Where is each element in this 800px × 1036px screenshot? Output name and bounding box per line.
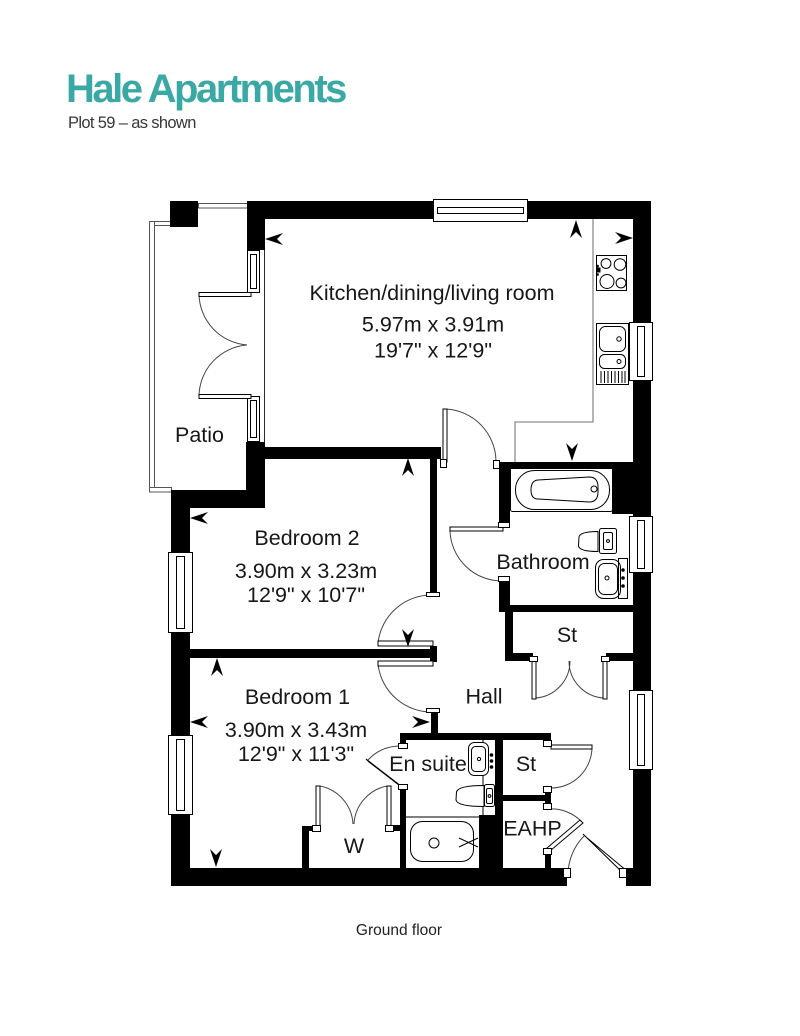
svg-text:St: St [516, 752, 536, 776]
svg-text:Bedroom 1: Bedroom 1 [245, 685, 350, 709]
svg-text:3.90m x 3.43m: 3.90m x 3.43m [225, 718, 367, 742]
svg-text:Ground floor: Ground floor [356, 922, 442, 939]
svg-text:W: W [344, 834, 365, 858]
svg-text:3.90m x 3.23m: 3.90m x 3.23m [235, 559, 377, 583]
svg-text:Hale Apartments: Hale Apartments [66, 67, 346, 111]
svg-text:En suite: En suite [389, 752, 467, 776]
svg-text:St: St [557, 623, 577, 647]
svg-text:Bathroom: Bathroom [496, 550, 589, 574]
svg-text:Kitchen/dining/living room: Kitchen/dining/living room [310, 281, 555, 305]
svg-text:5.97m x 3.91m: 5.97m x 3.91m [362, 313, 504, 337]
svg-text:Hall: Hall [465, 685, 502, 709]
svg-text:Plot 59 – as shown: Plot 59 – as shown [68, 114, 196, 132]
svg-text:12'9" x 11'3": 12'9" x 11'3" [238, 742, 354, 766]
svg-text:Bedroom 2: Bedroom 2 [254, 526, 359, 550]
svg-text:19'7" x 12'9": 19'7" x 12'9" [374, 339, 492, 363]
svg-text:Patio: Patio [175, 423, 224, 447]
svg-text:12'9" x 10'7": 12'9" x 10'7" [247, 583, 365, 607]
svg-text:EAHP: EAHP [503, 817, 562, 841]
